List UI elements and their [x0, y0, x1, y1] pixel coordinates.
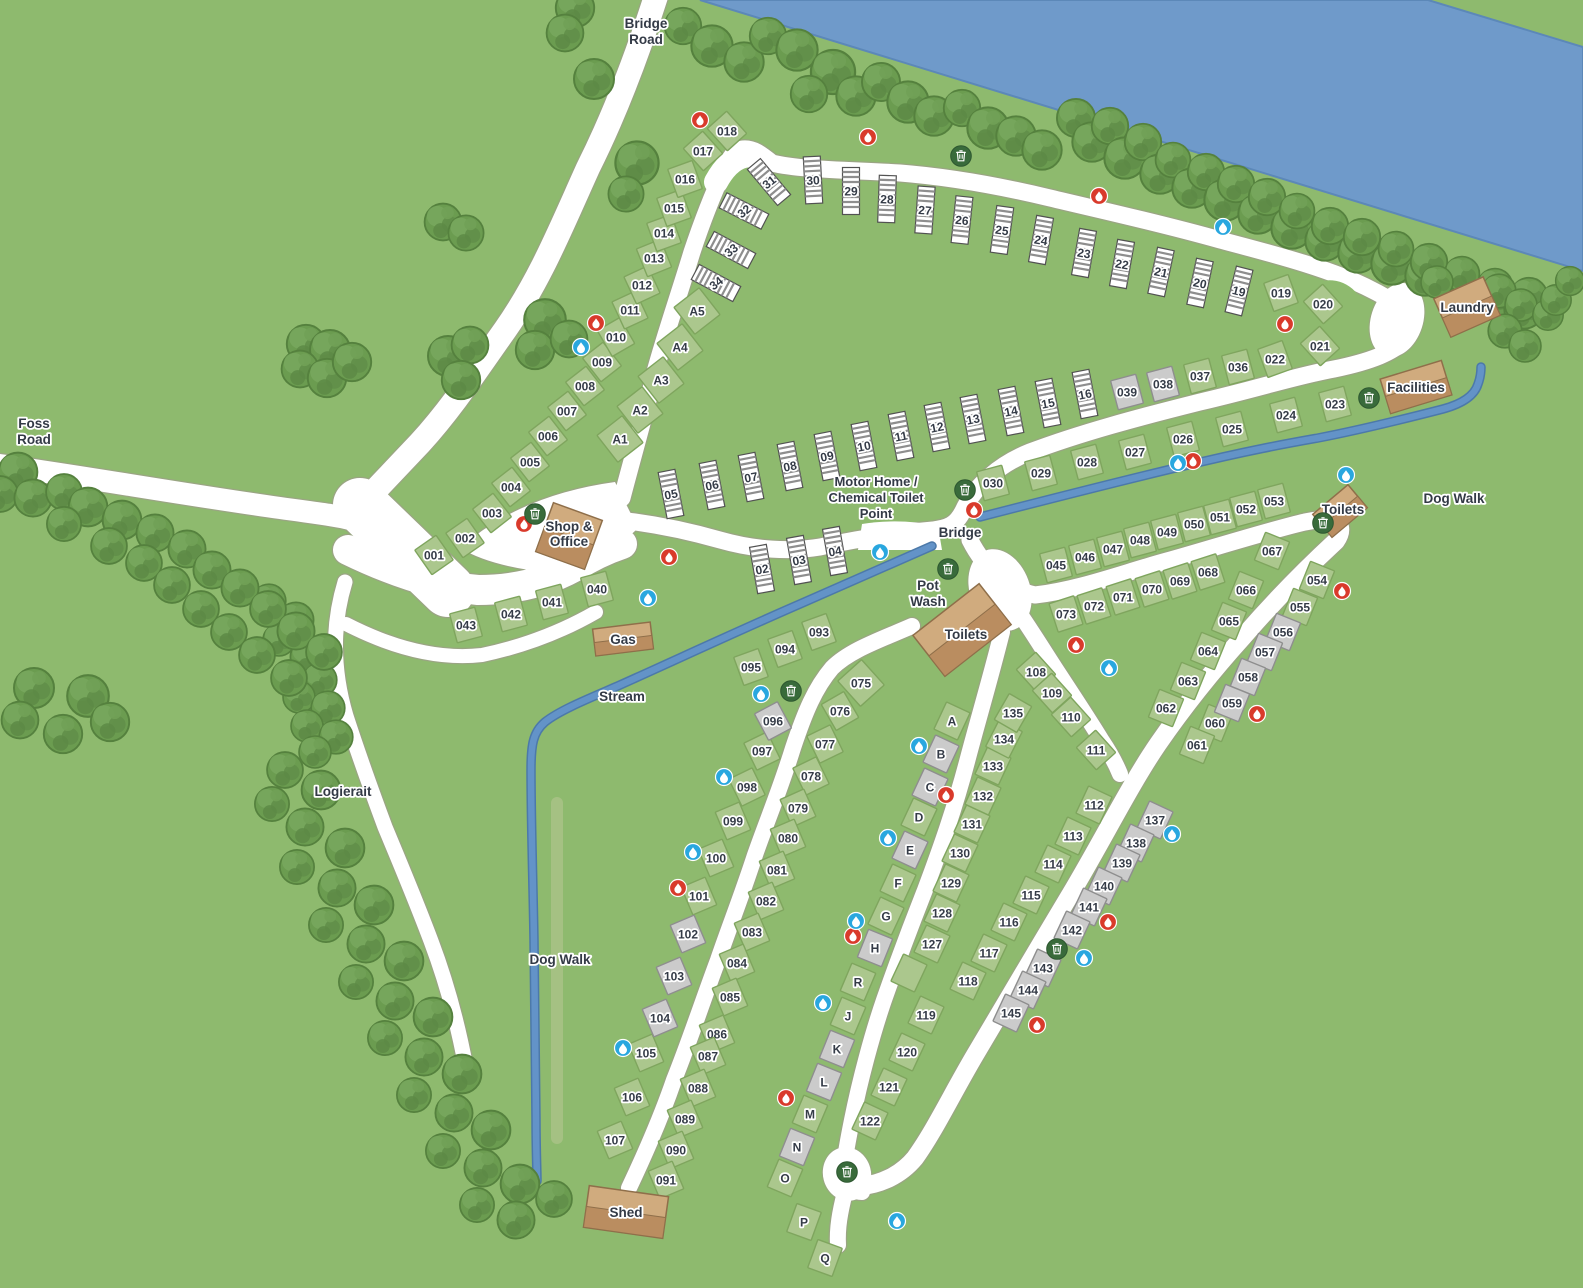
svg-text:115: 115 [1021, 889, 1041, 903]
svg-text:25: 25 [994, 223, 1009, 239]
svg-text:097: 097 [752, 745, 772, 759]
svg-text:134: 134 [994, 733, 1014, 747]
svg-text:Shed: Shed [609, 1205, 642, 1220]
svg-text:138: 138 [1126, 837, 1146, 851]
svg-text:114: 114 [1043, 858, 1063, 872]
svg-text:078: 078 [801, 770, 821, 784]
svg-text:104: 104 [650, 1012, 670, 1026]
svg-text:075: 075 [851, 677, 871, 691]
svg-text:040: 040 [587, 583, 607, 597]
svg-text:076: 076 [830, 705, 850, 719]
svg-text:053: 053 [1264, 495, 1284, 509]
svg-text:144: 144 [1018, 984, 1038, 998]
svg-text:043: 043 [456, 619, 476, 633]
svg-text:063: 063 [1178, 675, 1198, 689]
svg-text:020: 020 [1313, 298, 1333, 312]
svg-text:116: 116 [999, 916, 1019, 930]
svg-text:140: 140 [1094, 880, 1114, 894]
svg-text:137: 137 [1145, 814, 1165, 828]
svg-text:113: 113 [1063, 830, 1083, 844]
svg-text:012: 012 [632, 279, 652, 293]
svg-text:094: 094 [775, 643, 795, 657]
svg-text:096: 096 [763, 715, 783, 729]
svg-text:F: F [894, 877, 901, 891]
svg-text:Toilets: Toilets [945, 627, 988, 642]
svg-text:093: 093 [809, 626, 829, 640]
svg-text:121: 121 [879, 1081, 899, 1095]
svg-text:087: 087 [698, 1050, 718, 1064]
svg-text:02: 02 [754, 561, 770, 577]
svg-text:Chemical Toilet: Chemical Toilet [828, 490, 924, 505]
svg-text:072: 072 [1084, 600, 1104, 614]
svg-text:073: 073 [1056, 608, 1076, 622]
svg-text:117: 117 [979, 947, 999, 961]
svg-text:Wash: Wash [910, 594, 946, 609]
svg-text:24: 24 [1033, 232, 1049, 248]
svg-text:122: 122 [860, 1115, 880, 1129]
svg-text:099: 099 [723, 815, 743, 829]
svg-text:23: 23 [1076, 245, 1092, 261]
svg-text:006: 006 [538, 430, 558, 444]
svg-text:Motor Home /: Motor Home / [834, 474, 917, 489]
svg-text:Q: Q [820, 1252, 829, 1266]
svg-text:009: 009 [592, 356, 612, 370]
svg-text:L: L [820, 1076, 827, 1090]
svg-text:A4: A4 [672, 341, 688, 355]
svg-text:03: 03 [791, 552, 807, 568]
svg-text:071: 071 [1113, 591, 1133, 605]
svg-text:010: 010 [606, 331, 626, 345]
svg-text:120: 120 [897, 1046, 917, 1060]
svg-text:081: 081 [767, 864, 787, 878]
svg-text:070: 070 [1142, 583, 1162, 597]
svg-text:091: 091 [656, 1174, 676, 1188]
svg-text:139: 139 [1112, 857, 1132, 871]
svg-text:B: B [937, 748, 946, 762]
svg-text:051: 051 [1210, 511, 1230, 525]
svg-text:111: 111 [1087, 744, 1106, 758]
svg-text:100: 100 [706, 852, 726, 866]
svg-text:A3: A3 [653, 374, 669, 388]
svg-text:027: 027 [1125, 446, 1145, 460]
svg-text:018: 018 [717, 125, 737, 139]
svg-text:069: 069 [1170, 575, 1190, 589]
svg-text:015: 015 [664, 202, 684, 216]
svg-text:04: 04 [827, 543, 843, 559]
svg-text:Road: Road [629, 32, 663, 47]
svg-text:132: 132 [973, 790, 993, 804]
svg-text:143: 143 [1033, 962, 1053, 976]
svg-text:145: 145 [1001, 1007, 1021, 1021]
svg-text:039: 039 [1117, 386, 1137, 400]
svg-text:D: D [915, 811, 924, 825]
svg-text:001: 001 [424, 549, 444, 563]
svg-text:013: 013 [644, 252, 664, 266]
svg-text:O: O [780, 1172, 789, 1186]
svg-text:141: 141 [1079, 901, 1099, 915]
svg-text:084: 084 [727, 957, 747, 971]
svg-text:102: 102 [678, 928, 698, 942]
svg-text:106: 106 [622, 1091, 642, 1105]
svg-text:Foss: Foss [18, 416, 50, 431]
svg-text:A1: A1 [612, 433, 628, 447]
svg-text:N: N [793, 1141, 802, 1155]
svg-text:067: 067 [1262, 545, 1282, 559]
svg-text:Laundry: Laundry [1440, 300, 1494, 315]
svg-text:026: 026 [1173, 433, 1193, 447]
svg-text:J: J [845, 1010, 852, 1024]
svg-text:023: 023 [1325, 398, 1345, 412]
svg-text:110: 110 [1061, 711, 1081, 725]
svg-text:109: 109 [1042, 687, 1062, 701]
svg-text:038: 038 [1153, 378, 1173, 392]
svg-text:060: 060 [1205, 717, 1225, 731]
svg-text:135: 135 [1003, 707, 1023, 721]
svg-text:M: M [805, 1108, 815, 1122]
svg-text:037: 037 [1190, 370, 1210, 384]
svg-text:029: 029 [1031, 467, 1051, 481]
svg-text:Dog Walk: Dog Walk [1423, 491, 1484, 506]
svg-text:108: 108 [1026, 666, 1046, 680]
svg-text:127: 127 [922, 938, 942, 952]
svg-text:P: P [800, 1216, 808, 1230]
svg-text:28: 28 [880, 192, 894, 206]
svg-text:083: 083 [742, 926, 762, 940]
svg-text:030: 030 [983, 477, 1003, 491]
svg-text:Bridge: Bridge [939, 525, 982, 540]
svg-text:002: 002 [455, 532, 475, 546]
svg-text:046: 046 [1075, 551, 1095, 565]
svg-text:130: 130 [950, 847, 970, 861]
svg-text:Stream: Stream [599, 689, 645, 704]
svg-text:101: 101 [689, 890, 709, 904]
svg-text:095: 095 [741, 661, 761, 675]
svg-text:085: 085 [720, 991, 740, 1005]
svg-text:050: 050 [1184, 518, 1204, 532]
svg-text:Pot: Pot [917, 578, 939, 593]
svg-text:A5: A5 [689, 305, 705, 319]
svg-text:131: 131 [962, 818, 982, 832]
svg-text:Facilities: Facilities [1387, 380, 1445, 395]
svg-text:024: 024 [1276, 409, 1296, 423]
svg-text:017: 017 [693, 145, 713, 159]
svg-text:048: 048 [1130, 534, 1150, 548]
svg-text:Road: Road [17, 432, 51, 447]
svg-text:107: 107 [605, 1134, 625, 1148]
svg-text:054: 054 [1307, 574, 1327, 588]
svg-text:E: E [906, 844, 914, 858]
svg-text:088: 088 [688, 1082, 708, 1096]
svg-text:Office: Office [550, 534, 589, 549]
svg-text:G: G [881, 910, 890, 924]
svg-text:080: 080 [778, 832, 798, 846]
svg-text:036: 036 [1228, 361, 1248, 375]
svg-text:007: 007 [557, 405, 577, 419]
svg-text:019: 019 [1271, 287, 1291, 301]
svg-text:041: 041 [542, 596, 562, 610]
svg-text:052: 052 [1236, 503, 1256, 517]
svg-text:A2: A2 [632, 404, 648, 418]
svg-text:119: 119 [916, 1009, 936, 1023]
svg-text:128: 128 [932, 907, 952, 921]
svg-text:112: 112 [1084, 799, 1104, 813]
svg-text:058: 058 [1238, 671, 1258, 685]
svg-text:066: 066 [1236, 584, 1256, 598]
svg-text:021: 021 [1310, 340, 1330, 354]
svg-text:005: 005 [520, 456, 540, 470]
svg-text:22: 22 [1114, 256, 1130, 272]
svg-text:011: 011 [620, 304, 640, 318]
svg-text:Point: Point [860, 506, 893, 521]
svg-text:055: 055 [1290, 601, 1310, 615]
svg-text:045: 045 [1046, 559, 1066, 573]
svg-text:047: 047 [1103, 543, 1123, 557]
svg-text:056: 056 [1273, 626, 1293, 640]
svg-text:016: 016 [675, 173, 695, 187]
svg-text:042: 042 [501, 608, 521, 622]
svg-text:30: 30 [806, 173, 820, 188]
svg-text:Dog Walk: Dog Walk [529, 952, 590, 967]
svg-text:003: 003 [482, 507, 502, 521]
svg-text:Logierait: Logierait [314, 784, 372, 799]
svg-text:098: 098 [737, 781, 757, 795]
svg-text:118: 118 [958, 975, 978, 989]
svg-text:022: 022 [1265, 353, 1285, 367]
svg-text:061: 061 [1187, 739, 1207, 753]
svg-text:057: 057 [1255, 646, 1275, 660]
svg-text:025: 025 [1222, 423, 1242, 437]
svg-text:C: C [926, 781, 935, 795]
svg-text:014: 014 [654, 227, 674, 241]
svg-text:103: 103 [664, 970, 684, 984]
svg-text:062: 062 [1156, 702, 1176, 716]
svg-text:A: A [948, 715, 957, 729]
svg-text:049: 049 [1157, 526, 1177, 540]
svg-text:29: 29 [844, 185, 858, 199]
svg-text:Bridge: Bridge [625, 16, 668, 31]
svg-text:R: R [854, 976, 863, 990]
svg-text:079: 079 [788, 802, 808, 816]
svg-text:129: 129 [941, 877, 961, 891]
svg-text:27: 27 [918, 203, 933, 218]
svg-text:Shop &: Shop & [545, 519, 592, 534]
svg-text:077: 077 [815, 738, 835, 752]
svg-text:H: H [871, 942, 880, 956]
svg-text:068: 068 [1198, 566, 1218, 580]
svg-text:142: 142 [1062, 924, 1082, 938]
svg-text:008: 008 [575, 380, 595, 394]
svg-text:Gas: Gas [610, 632, 636, 647]
svg-text:105: 105 [636, 1047, 656, 1061]
svg-text:133: 133 [983, 760, 1003, 774]
svg-text:082: 082 [756, 895, 776, 909]
svg-text:064: 064 [1198, 645, 1218, 659]
svg-text:K: K [833, 1043, 842, 1057]
svg-text:059: 059 [1222, 697, 1242, 711]
svg-text:26: 26 [955, 213, 970, 228]
svg-text:028: 028 [1077, 456, 1097, 470]
svg-text:089: 089 [675, 1113, 695, 1127]
svg-text:065: 065 [1219, 615, 1239, 629]
svg-text:090: 090 [666, 1144, 686, 1158]
svg-text:004: 004 [501, 481, 521, 495]
